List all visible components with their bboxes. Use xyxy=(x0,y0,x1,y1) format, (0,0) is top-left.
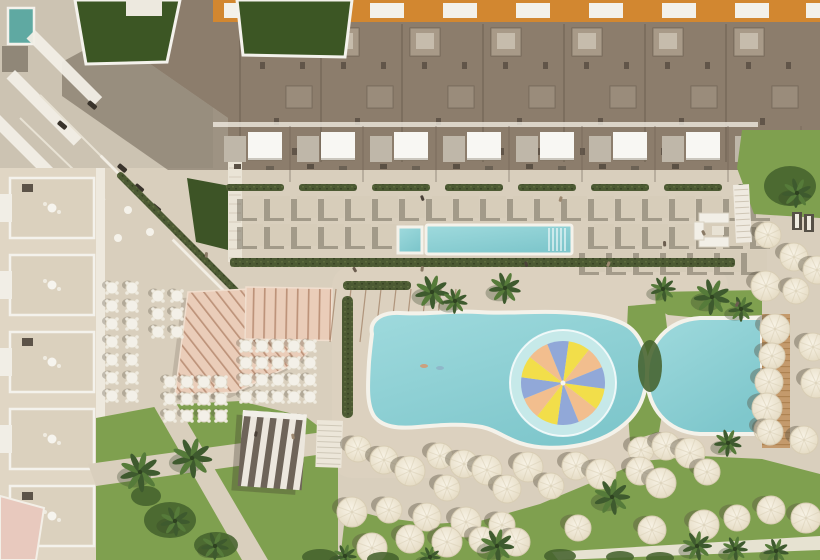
patio-table xyxy=(48,281,57,290)
patio-chair xyxy=(57,364,61,368)
bistro-chair xyxy=(170,307,174,311)
roof-furniture xyxy=(503,62,508,69)
bistro-chair xyxy=(271,400,275,404)
sunbed-pad xyxy=(513,196,533,218)
bistro-chair xyxy=(271,339,275,343)
bistro-chair xyxy=(161,299,165,303)
bistro-chair xyxy=(125,363,129,367)
bistro-chair xyxy=(207,409,211,413)
bistro-chair xyxy=(135,317,139,321)
bistro-chair xyxy=(297,383,301,387)
sunbed-pad xyxy=(567,196,587,218)
sunbed-pad xyxy=(324,196,344,218)
bistro-chair xyxy=(190,392,194,396)
bistro-chair xyxy=(239,366,243,370)
sunbed-pad xyxy=(621,224,641,246)
palm-crown xyxy=(661,287,665,291)
bistro-chair xyxy=(115,345,119,349)
bistro-chair xyxy=(115,399,119,403)
roof-furniture xyxy=(624,62,629,69)
roof-skylight xyxy=(370,3,404,18)
resort-aerial-view xyxy=(0,0,820,560)
bistro-chair xyxy=(287,373,291,377)
terrace-furniture xyxy=(22,492,33,500)
bistro-chair xyxy=(105,299,109,303)
canopy-shade xyxy=(394,158,428,161)
palm-crown xyxy=(453,299,457,303)
bistro-chair xyxy=(135,371,139,375)
hedge xyxy=(372,184,430,191)
balcony xyxy=(0,194,12,222)
bistro-chair xyxy=(125,327,129,331)
cabana xyxy=(662,136,684,162)
stairs xyxy=(315,420,343,468)
white-canopy xyxy=(613,132,647,160)
bistro-chair xyxy=(135,353,139,357)
palm-crown xyxy=(173,519,177,523)
sunbed-pad xyxy=(594,196,614,218)
bistro-chair xyxy=(170,325,174,329)
bistro-chair xyxy=(214,409,218,413)
roof-furniture xyxy=(422,62,427,69)
patio-table xyxy=(48,358,57,367)
bistro-chair xyxy=(180,385,184,389)
bistro-chair xyxy=(255,390,259,394)
pinwheel-hub xyxy=(561,381,566,386)
bistro-chair xyxy=(255,356,259,360)
canopy-shade xyxy=(540,158,574,161)
terrace-furniture xyxy=(485,166,493,170)
balcony xyxy=(0,348,12,376)
bistro-chair xyxy=(224,402,228,406)
bistro-chair xyxy=(239,356,243,360)
bistro-chair xyxy=(151,335,155,339)
roof-furniture xyxy=(543,62,548,69)
bistro-chair xyxy=(224,409,228,413)
bistro-chair xyxy=(170,317,174,321)
bistro-chair xyxy=(265,383,269,387)
bistro-chair xyxy=(161,289,165,293)
bistro-chair xyxy=(125,371,129,375)
bistro-chair xyxy=(224,375,228,379)
patio-chair xyxy=(57,518,61,522)
sunbed-pad xyxy=(747,250,767,272)
roof-terrace xyxy=(610,86,636,108)
bistro-chair xyxy=(125,299,129,303)
roof-furniture xyxy=(300,62,305,69)
palm-crown xyxy=(710,295,714,299)
bistro-chair xyxy=(173,402,177,406)
sunbed-pad xyxy=(243,196,263,218)
hedge xyxy=(518,184,576,191)
bistro-chair xyxy=(163,402,167,406)
palm-crown xyxy=(495,544,499,548)
palm-crown xyxy=(428,555,432,559)
bistro-chair xyxy=(161,317,165,321)
patio-table xyxy=(114,234,122,242)
shade-canopy xyxy=(245,287,332,340)
roof-skylight xyxy=(662,3,696,18)
hedge xyxy=(591,184,649,191)
bistro-chair xyxy=(249,400,253,404)
bistro-chair xyxy=(173,385,177,389)
bistro-chair xyxy=(287,383,291,387)
bistro-chair xyxy=(271,383,275,387)
palm-crown xyxy=(774,549,778,553)
bistro-chair xyxy=(125,399,129,403)
terrace-furniture xyxy=(412,166,420,170)
patio-chair xyxy=(57,441,61,445)
roof-terrace xyxy=(448,86,474,108)
bistro-chair xyxy=(170,299,174,303)
cabana xyxy=(297,136,319,162)
bistro-chair xyxy=(190,375,194,379)
lap-pool xyxy=(426,225,572,254)
cabana xyxy=(589,136,611,162)
bistro-chair xyxy=(190,385,194,389)
bistro-chair xyxy=(313,390,317,394)
bistro-chair xyxy=(303,390,307,394)
patio-chair xyxy=(43,433,47,437)
green-roof xyxy=(237,0,352,57)
terrace-furniture xyxy=(307,164,314,169)
bistro-chair xyxy=(125,317,129,321)
roof-furniture xyxy=(462,62,467,69)
terrace-furniture xyxy=(339,166,347,170)
roof-skylight xyxy=(806,3,820,18)
terrace-furniture xyxy=(672,164,679,169)
terrace-furniture xyxy=(380,164,387,169)
bistro-chair xyxy=(125,389,129,393)
terrace-furniture xyxy=(631,166,639,170)
terrace-furniture xyxy=(558,166,566,170)
bistro-chair xyxy=(115,353,119,357)
bistro-chair xyxy=(207,419,211,423)
roof-furniture xyxy=(292,148,297,155)
bistro-chair xyxy=(239,339,243,343)
resort-scene xyxy=(0,0,820,560)
bistro-chair xyxy=(115,389,119,393)
bistro-chair xyxy=(224,392,228,396)
bistro-chair xyxy=(255,383,259,387)
bistro-chair xyxy=(303,356,307,360)
bistro-chair xyxy=(151,307,155,311)
bistro-chair xyxy=(151,317,155,321)
swimmer xyxy=(436,366,444,370)
bistro-chair xyxy=(287,339,291,343)
roof-furniture xyxy=(341,62,346,69)
terrace-furniture xyxy=(599,164,606,169)
palm-crown xyxy=(430,290,434,294)
bistro-chair xyxy=(197,402,201,406)
bistro-chair xyxy=(265,400,269,404)
lounger-pad xyxy=(795,214,799,228)
sunbed-pad xyxy=(270,196,290,218)
cabana xyxy=(516,136,538,162)
swimmer xyxy=(420,364,428,368)
bistro-chair xyxy=(265,349,269,353)
bistro-chair xyxy=(303,400,307,404)
sunbed-pad xyxy=(297,224,317,246)
bistro-chair xyxy=(239,400,243,404)
bistro-chair xyxy=(170,289,174,293)
palm-crown xyxy=(610,495,614,499)
bistro-chair xyxy=(125,353,129,357)
roof-furniture xyxy=(665,62,670,69)
hedge xyxy=(342,296,353,418)
lounge-table xyxy=(712,226,724,235)
bistro-chair xyxy=(303,373,307,377)
bistro-chair xyxy=(180,307,184,311)
terrace-furniture xyxy=(22,338,33,346)
bistro-chair xyxy=(190,419,194,423)
roof-furniture xyxy=(786,62,791,69)
bistro-chair xyxy=(287,366,291,370)
roof-furniture xyxy=(260,62,265,69)
white-canopy xyxy=(540,132,574,160)
bistro-chair xyxy=(313,400,317,404)
sunbed-pad xyxy=(540,196,560,218)
bistro-chair xyxy=(105,371,109,375)
roof-furniture xyxy=(760,118,765,125)
bistro-chair xyxy=(135,299,139,303)
terrace-furniture xyxy=(704,166,712,170)
bistro-chair xyxy=(163,392,167,396)
bistro-chair xyxy=(207,385,211,389)
striped-pavilion xyxy=(238,410,307,490)
bistro-chair xyxy=(197,385,201,389)
bistro-chair xyxy=(135,399,139,403)
bistro-chair xyxy=(255,349,259,353)
sunbed-pad xyxy=(297,196,317,218)
hedge xyxy=(230,258,735,267)
bistro-chair xyxy=(255,366,259,370)
sunbed-pad xyxy=(378,196,398,218)
bistro-chair xyxy=(105,309,109,313)
sunbed-pad xyxy=(324,224,344,246)
balcony xyxy=(0,425,12,453)
patio-chair xyxy=(43,279,47,283)
bistro-chair xyxy=(180,375,184,379)
white-canopy xyxy=(467,132,501,160)
bistro-chair xyxy=(115,281,119,285)
bistro-chair xyxy=(255,400,259,404)
roof-furniture xyxy=(705,62,710,69)
bistro-chair xyxy=(115,309,119,313)
bistro-chair xyxy=(105,327,109,331)
bistro-chair xyxy=(180,402,184,406)
roof-terrace-inner xyxy=(497,33,515,49)
bistro-chair xyxy=(287,390,291,394)
bistro-chair xyxy=(197,392,201,396)
terrace-furniture xyxy=(266,166,274,170)
bistro-chair xyxy=(173,419,177,423)
roof-skylight xyxy=(589,3,623,18)
roof-block xyxy=(2,46,28,72)
bistro-chair xyxy=(135,363,139,367)
bistro-chair xyxy=(197,409,201,413)
bistro-chair xyxy=(197,419,201,423)
bistro-chair xyxy=(115,381,119,385)
palm-crown xyxy=(726,441,730,445)
sunbed-pad xyxy=(648,196,668,218)
roof-terrace xyxy=(529,86,555,108)
patio-chair xyxy=(57,210,61,214)
bistro-chair xyxy=(303,349,307,353)
lounger-pad xyxy=(807,216,811,230)
bistro-chair xyxy=(265,366,269,370)
palm-crown xyxy=(138,470,142,474)
bistro-chair xyxy=(115,327,119,331)
hedge xyxy=(343,281,411,290)
bistro-chair xyxy=(313,356,317,360)
bistro-chair xyxy=(239,349,243,353)
bistro-chair xyxy=(105,281,109,285)
sunbed-pad xyxy=(432,196,452,218)
palm-crown xyxy=(733,547,737,551)
bistro-chair xyxy=(115,317,119,321)
bistro-chair xyxy=(180,392,184,396)
palm-crown xyxy=(343,554,347,558)
sunbed-pad xyxy=(621,196,641,218)
bistro-chair xyxy=(297,349,301,353)
bistro-chair xyxy=(115,291,119,295)
person xyxy=(205,252,208,258)
roof-terrace-inner xyxy=(740,33,758,49)
palm-crown xyxy=(213,544,217,548)
bistro-chair xyxy=(125,281,129,285)
bistro-chair xyxy=(287,349,291,353)
bistro-chair xyxy=(180,409,184,413)
bistro-chair xyxy=(271,373,275,377)
roof-skylight xyxy=(516,3,550,18)
bistro-chair xyxy=(197,375,201,379)
canopy-shade xyxy=(613,158,647,161)
bistro-chair xyxy=(105,399,109,403)
bistro-chair xyxy=(190,402,194,406)
bistro-chair xyxy=(207,392,211,396)
bistro-chair xyxy=(135,281,139,285)
bistro-chair xyxy=(135,345,139,349)
bistro-chair xyxy=(249,366,253,370)
bistro-chair xyxy=(125,335,129,339)
palm-crown xyxy=(695,544,699,548)
second-pool xyxy=(647,318,762,434)
bistro-chair xyxy=(135,335,139,339)
bistro-chair xyxy=(161,307,165,311)
bistro-chair xyxy=(115,335,119,339)
bistro-chair xyxy=(271,366,275,370)
bush xyxy=(638,340,662,392)
bistro-chair xyxy=(135,309,139,313)
bistro-chair xyxy=(115,363,119,367)
sunbed-pad xyxy=(675,224,695,246)
bistro-chair xyxy=(125,345,129,349)
roof-furniture xyxy=(381,62,386,69)
bistro-chair xyxy=(180,419,184,423)
pink-roof xyxy=(0,496,44,560)
roof-furniture xyxy=(584,62,589,69)
bistro-chair xyxy=(249,383,253,387)
bistro-chair xyxy=(105,317,109,321)
roof-terrace xyxy=(772,86,798,108)
bistro-chair xyxy=(105,335,109,339)
roof-terrace xyxy=(691,86,717,108)
bistro-chair xyxy=(105,291,109,295)
bistro-chair xyxy=(224,419,228,423)
bistro-chair xyxy=(207,375,211,379)
bistro-chair xyxy=(313,383,317,387)
bistro-chair xyxy=(151,299,155,303)
bistro-chair xyxy=(105,353,109,357)
bistro-chair xyxy=(224,385,228,389)
patio-table xyxy=(48,435,57,444)
terrace-furniture xyxy=(453,164,460,169)
bistro-chair xyxy=(297,366,301,370)
bistro-chair xyxy=(180,335,184,339)
roof-furniture xyxy=(746,62,751,69)
bistro-chair xyxy=(170,335,174,339)
bistro-chair xyxy=(115,371,119,375)
bistro-chair xyxy=(313,349,317,353)
bistro-chair xyxy=(135,381,139,385)
plunge-pool xyxy=(398,227,422,253)
bistro-chair xyxy=(313,366,317,370)
bistro-chair xyxy=(125,291,129,295)
bush xyxy=(131,486,161,506)
bistro-chair xyxy=(281,349,285,353)
bistro-chair xyxy=(214,392,218,396)
bistro-chair xyxy=(163,375,167,379)
patio-chair xyxy=(43,202,47,206)
bistro-chair xyxy=(239,383,243,387)
bistro-chair xyxy=(151,325,155,329)
hedge xyxy=(226,184,284,191)
bistro-chair xyxy=(161,335,165,339)
bistro-chair xyxy=(239,390,243,394)
bistro-chair xyxy=(303,383,307,387)
cabana xyxy=(443,136,465,162)
bistro-chair xyxy=(303,366,307,370)
bistro-chair xyxy=(249,349,253,353)
bistro-chair xyxy=(287,356,291,360)
roof-terrace-inner xyxy=(416,33,434,49)
palm-crown xyxy=(190,456,194,460)
bistro-chair xyxy=(180,317,184,321)
roof-skylight xyxy=(443,3,477,18)
patio-table xyxy=(48,204,57,213)
terrace-furniture xyxy=(526,164,533,169)
bistro-chair xyxy=(297,400,301,404)
person xyxy=(663,241,666,247)
hedge xyxy=(664,184,722,191)
bistro-chair xyxy=(255,373,259,377)
sunbed-pad xyxy=(270,224,290,246)
patio-table xyxy=(48,512,57,521)
sunbed-pad xyxy=(594,224,614,246)
bistro-chair xyxy=(287,400,291,404)
bistro-chair xyxy=(173,409,177,413)
bistro-chair xyxy=(214,375,218,379)
hedge xyxy=(299,184,357,191)
white-roof xyxy=(126,0,162,16)
white-canopy xyxy=(394,132,428,160)
bistro-chair xyxy=(271,356,275,360)
bistro-chair xyxy=(105,389,109,393)
bistro-chair xyxy=(281,400,285,404)
bistro-chair xyxy=(281,366,285,370)
patio-table xyxy=(124,206,132,214)
